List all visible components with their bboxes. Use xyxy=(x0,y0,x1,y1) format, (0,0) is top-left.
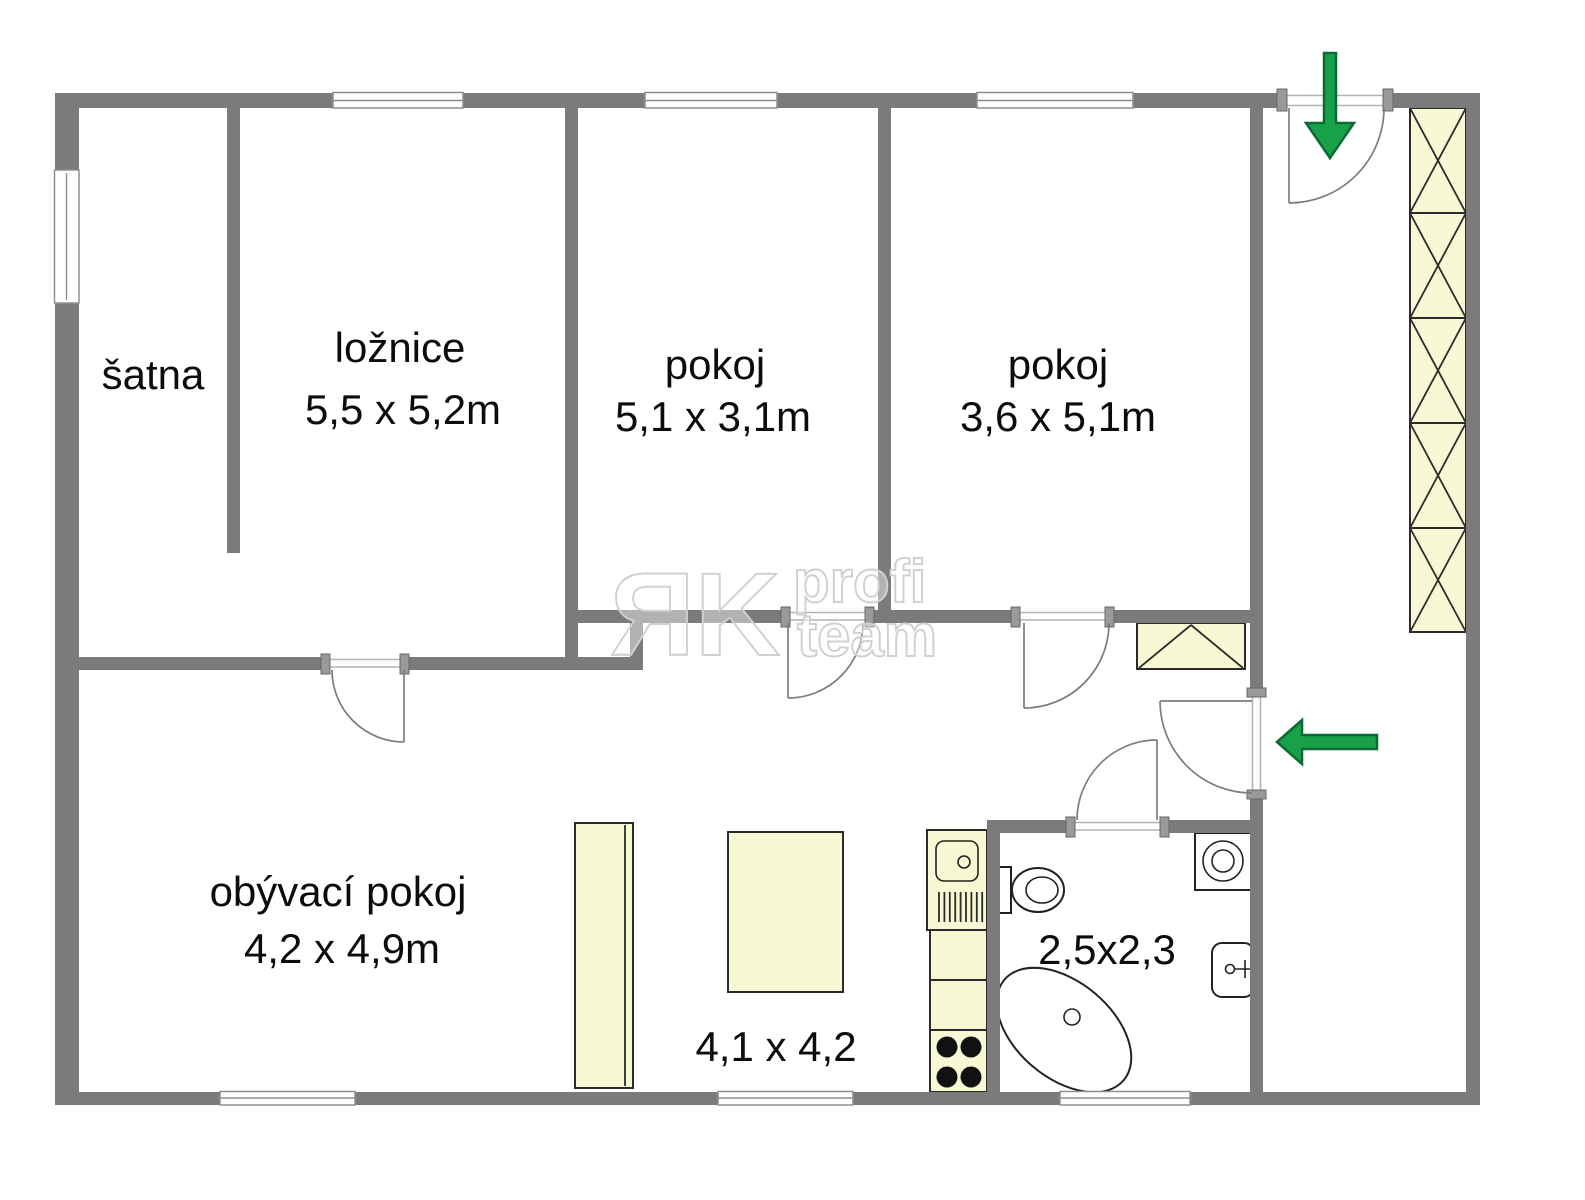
floor-plan: ЯK profi team šatna ložnice 5,5 x 5,2m p… xyxy=(0,0,1585,1200)
wall-right xyxy=(1466,93,1480,1105)
doors xyxy=(321,89,1393,837)
room-dims-pokoj-b: 3,6 x 5,1m xyxy=(960,393,1156,440)
window-obyvaci xyxy=(220,1092,355,1106)
entrance-arrow-left-icon xyxy=(1277,720,1377,764)
watermark-logo: ЯK xyxy=(610,549,780,681)
door-apartment-entry xyxy=(1160,688,1266,799)
watermark: ЯK profi team xyxy=(610,548,937,681)
window-pokoj-a xyxy=(645,93,777,109)
door-koupelna xyxy=(1066,740,1169,837)
room-label-satna: šatna xyxy=(102,351,205,398)
kitchen-cabinets xyxy=(930,930,987,1030)
floor-plan-drawing: ЯK profi team šatna ložnice 5,5 x 5,2m p… xyxy=(0,0,1585,1200)
door-pokoj-b xyxy=(1011,607,1114,708)
room-label-obyvaci: obývací pokoj xyxy=(210,868,467,915)
room-label-pokoj-a: pokoj xyxy=(665,341,765,388)
room-dims-pokoj-a: 5,1 x 3,1m xyxy=(615,393,811,440)
window-loznice xyxy=(333,93,463,109)
wall-pokoj-divider xyxy=(878,108,891,623)
wall-loznice-divider xyxy=(565,108,578,670)
kitchen-table xyxy=(728,832,843,992)
door-loznice xyxy=(321,654,409,742)
window-pokoj-b xyxy=(977,93,1133,109)
room-label-pokoj-b: pokoj xyxy=(1008,341,1108,388)
room-dims-obyvaci: 4,2 x 4,9m xyxy=(244,925,440,972)
room-labels: šatna ložnice 5,5 x 5,2m pokoj 5,1 x 3,1… xyxy=(102,324,1176,1070)
stove xyxy=(930,1030,987,1092)
window-kuchyn xyxy=(718,1092,853,1106)
hall-cabinet xyxy=(1137,623,1245,669)
washing-machine xyxy=(1195,833,1252,890)
room-dims-kuchyn: 4,1 x 4,2 xyxy=(695,1023,856,1070)
watermark-word-team: team xyxy=(797,602,937,669)
bathroom-sink xyxy=(1212,943,1254,997)
room-label-loznice: ložnice xyxy=(335,324,466,371)
window-satna xyxy=(55,170,80,303)
room-dims-loznice: 5,5 x 5,2m xyxy=(305,386,501,433)
wall-corridor-divider xyxy=(1250,108,1263,1105)
wardrobe-column xyxy=(1410,108,1466,632)
wall-bathroom-west xyxy=(987,820,1000,1092)
kitchen-sink-counter xyxy=(927,830,987,930)
wall-satna-divider xyxy=(227,108,240,553)
toilet xyxy=(998,867,1064,913)
room-dims-koupelna: 2,5x2,3 xyxy=(1038,926,1176,973)
tall-cabinet xyxy=(575,823,633,1088)
window-koupelna xyxy=(1060,1092,1190,1106)
